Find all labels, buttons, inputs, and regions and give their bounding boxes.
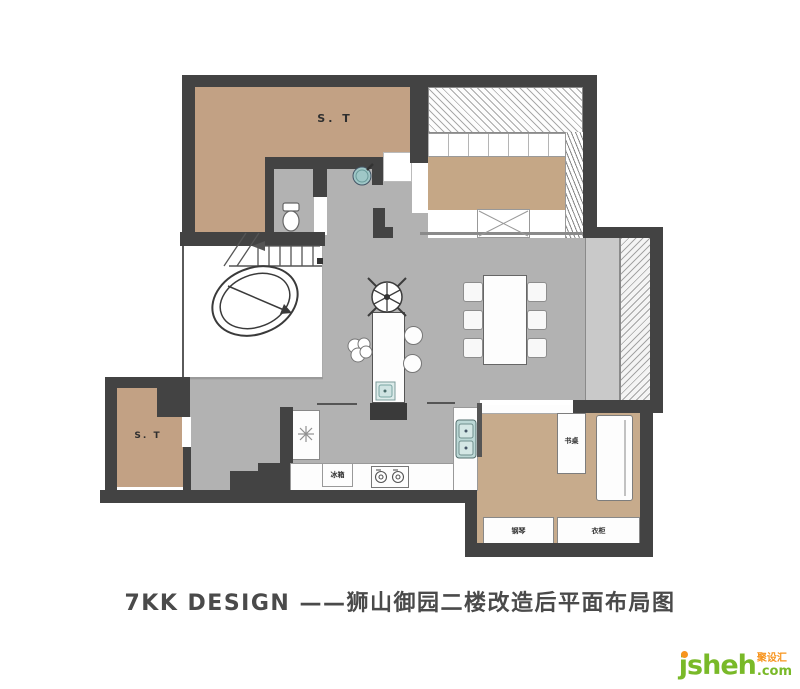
kitchen-counter-right (453, 407, 478, 491)
wall-segment (230, 471, 258, 493)
door-gap-top-right (412, 163, 428, 213)
room-label-storage-bottom: S. T (120, 431, 176, 441)
dining-chair (463, 310, 483, 330)
wall-segment (157, 377, 190, 417)
logo-tagline: 聚设汇 (757, 654, 787, 664)
plan-title: 7KK DESIGN ——狮山御园二楼改造后平面布局图 (0, 585, 800, 617)
wall-segment (182, 75, 597, 87)
label-desk: 书桌 (557, 436, 586, 446)
wall-segment (410, 87, 428, 163)
jsheh-logo: jsheh 聚设汇 .com (679, 650, 792, 679)
corridor-edge-line (188, 377, 323, 379)
bar-stool (403, 354, 422, 373)
balcony-light-strip (585, 238, 620, 400)
wall-segment (583, 75, 597, 238)
dining-chair (527, 282, 547, 302)
wall-segment (465, 495, 477, 557)
island-base (370, 403, 407, 420)
block-edge-line (420, 232, 587, 235)
kitchen-island (372, 312, 405, 403)
tatami-desk-strip (428, 157, 565, 210)
basin-cabinet (383, 152, 412, 182)
wall-segment (372, 157, 383, 185)
dining-chair (463, 282, 483, 302)
logo-tld: .com (757, 665, 792, 678)
dining-chair (463, 338, 483, 358)
wall-segment (650, 227, 663, 413)
wardrobe-row (428, 133, 565, 157)
wall-segment (313, 163, 327, 197)
wall-segment (477, 403, 482, 457)
label-wardrobe: 衣柜 (557, 526, 640, 536)
fridge (292, 410, 320, 460)
logo-orange-dot (681, 651, 688, 658)
wall-segment (182, 75, 195, 235)
room-storage-top-floor-ext (194, 157, 265, 232)
dining-table (483, 275, 527, 365)
dining-chair (527, 310, 547, 330)
wall-segment (183, 447, 191, 490)
stair-void-area (182, 246, 323, 380)
logo-brand-text: jsheh (679, 650, 756, 679)
wall-segment (373, 227, 393, 238)
bed (596, 415, 633, 501)
wall-segment (280, 407, 293, 463)
wall-segment (640, 400, 653, 557)
wall-segment (465, 543, 653, 557)
wall-segment (180, 232, 325, 246)
insulation-strip (565, 132, 583, 238)
sloped-ceiling-hatch (428, 87, 583, 133)
room-label-storage-top: S. T (303, 112, 367, 125)
balcony-hatch-strip (620, 238, 650, 400)
outside-patch (597, 87, 663, 227)
bar-stool (404, 326, 423, 345)
label-fridge: 冰箱 (322, 463, 353, 487)
wall-segment (265, 157, 274, 233)
dining-chair (527, 338, 547, 358)
floor-plan-canvas: S. T S. T 冰箱 书桌 钢琴 衣柜 7KK DESIGN ——狮山御园二… (0, 0, 800, 689)
label-piano: 钢琴 (483, 526, 554, 536)
gas-stove (371, 466, 409, 488)
wall-segment (105, 377, 117, 502)
storage-bottom-door-gap (182, 417, 191, 447)
wc-door-gap (314, 197, 327, 235)
wall-segment (258, 463, 290, 493)
